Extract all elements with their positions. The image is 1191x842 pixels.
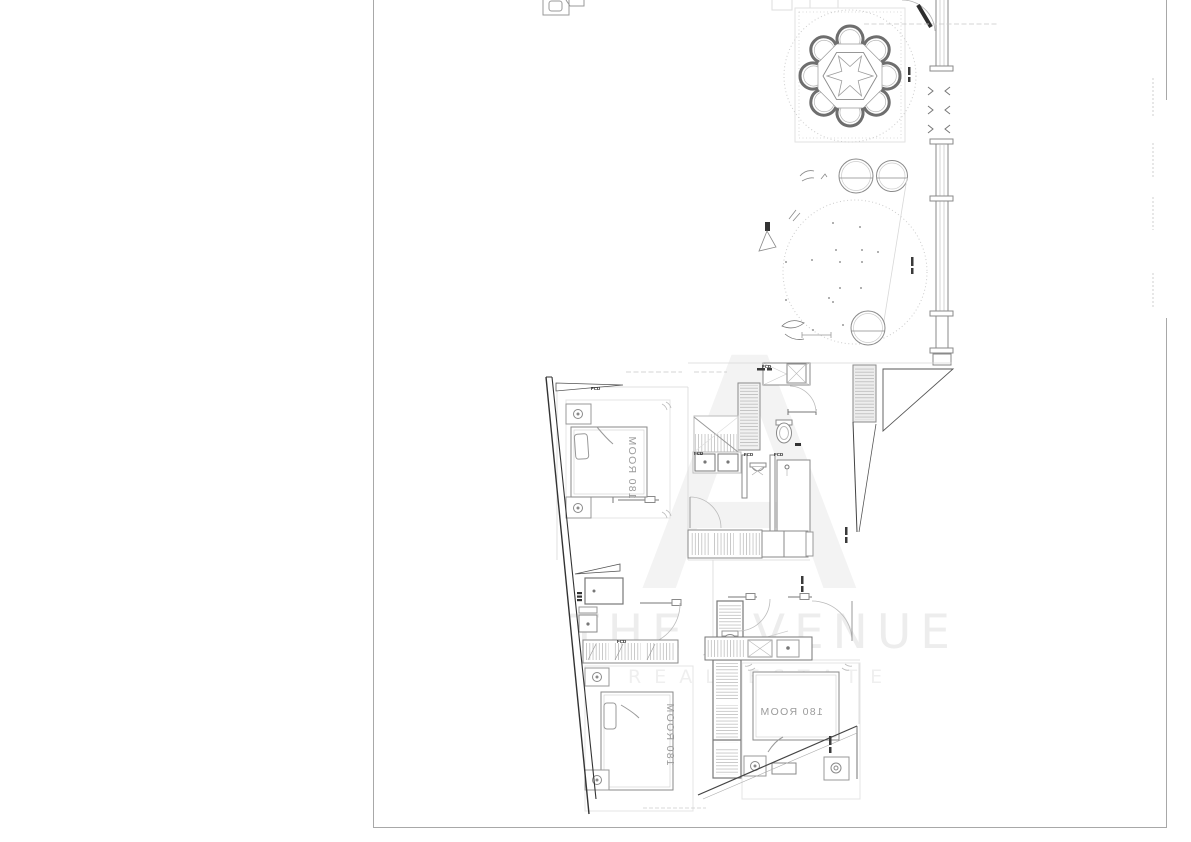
sliding-door bbox=[788, 386, 816, 415]
floor-plan-sheet: A THE AVENUE REAL ESTATE bbox=[0, 0, 1191, 842]
living-area bbox=[759, 200, 927, 345]
top-edge-furniture bbox=[543, 0, 838, 15]
wardrobe bbox=[713, 660, 741, 778]
small-mark bbox=[821, 174, 827, 179]
door-arc-bedroom-a bbox=[690, 497, 721, 528]
faint-diagonal bbox=[883, 178, 907, 327]
bedroom-bottom-left-label: 180 ROOM bbox=[664, 694, 676, 774]
pillow bbox=[574, 434, 589, 460]
chevron-marks bbox=[928, 87, 950, 133]
plant bbox=[782, 321, 804, 340]
ottoman bbox=[851, 311, 885, 345]
dresser bbox=[583, 640, 678, 663]
annotation-mark bbox=[795, 443, 801, 446]
stools bbox=[839, 159, 908, 193]
facade-triangle bbox=[883, 369, 953, 431]
bath-counter bbox=[705, 637, 812, 660]
bedroom-bottom-right bbox=[705, 637, 860, 799]
closet bbox=[585, 578, 623, 604]
bedroom-bottom-right-label: 180 ROOM bbox=[756, 706, 826, 718]
bathroom-right bbox=[777, 460, 810, 532]
bedroom-bottom-left bbox=[575, 564, 706, 811]
bench-line bbox=[802, 332, 831, 338]
bidet bbox=[750, 463, 766, 475]
fridge-cabinet bbox=[738, 383, 760, 450]
sconce-marks bbox=[745, 664, 852, 670]
plant-strokes bbox=[789, 210, 800, 221]
shower bbox=[694, 416, 738, 453]
door-tag: FCD bbox=[591, 386, 600, 391]
plant-sprig bbox=[800, 171, 814, 181]
door-tag: FCD bbox=[762, 364, 771, 369]
kitchen-counter bbox=[688, 530, 813, 558]
pillow bbox=[604, 703, 616, 729]
plan-linework bbox=[0, 0, 1191, 842]
door-tag: FCD bbox=[694, 451, 703, 456]
door-tag: FCD bbox=[617, 639, 626, 644]
wall-strip bbox=[742, 455, 747, 498]
door-tag: FCD bbox=[774, 452, 783, 457]
wall-strip bbox=[770, 455, 775, 532]
unit-core bbox=[613, 363, 852, 657]
bedroom-top-label: 180 ROOM bbox=[626, 427, 638, 507]
living-door-symbol bbox=[759, 222, 776, 251]
annotation-stack bbox=[577, 592, 582, 601]
door-tag: FCD bbox=[744, 452, 753, 457]
right-window-wall bbox=[928, 0, 953, 365]
tapered-wall-bar bbox=[575, 564, 620, 574]
dining-area bbox=[784, 0, 935, 327]
bench bbox=[772, 763, 796, 774]
toilet bbox=[776, 420, 792, 443]
